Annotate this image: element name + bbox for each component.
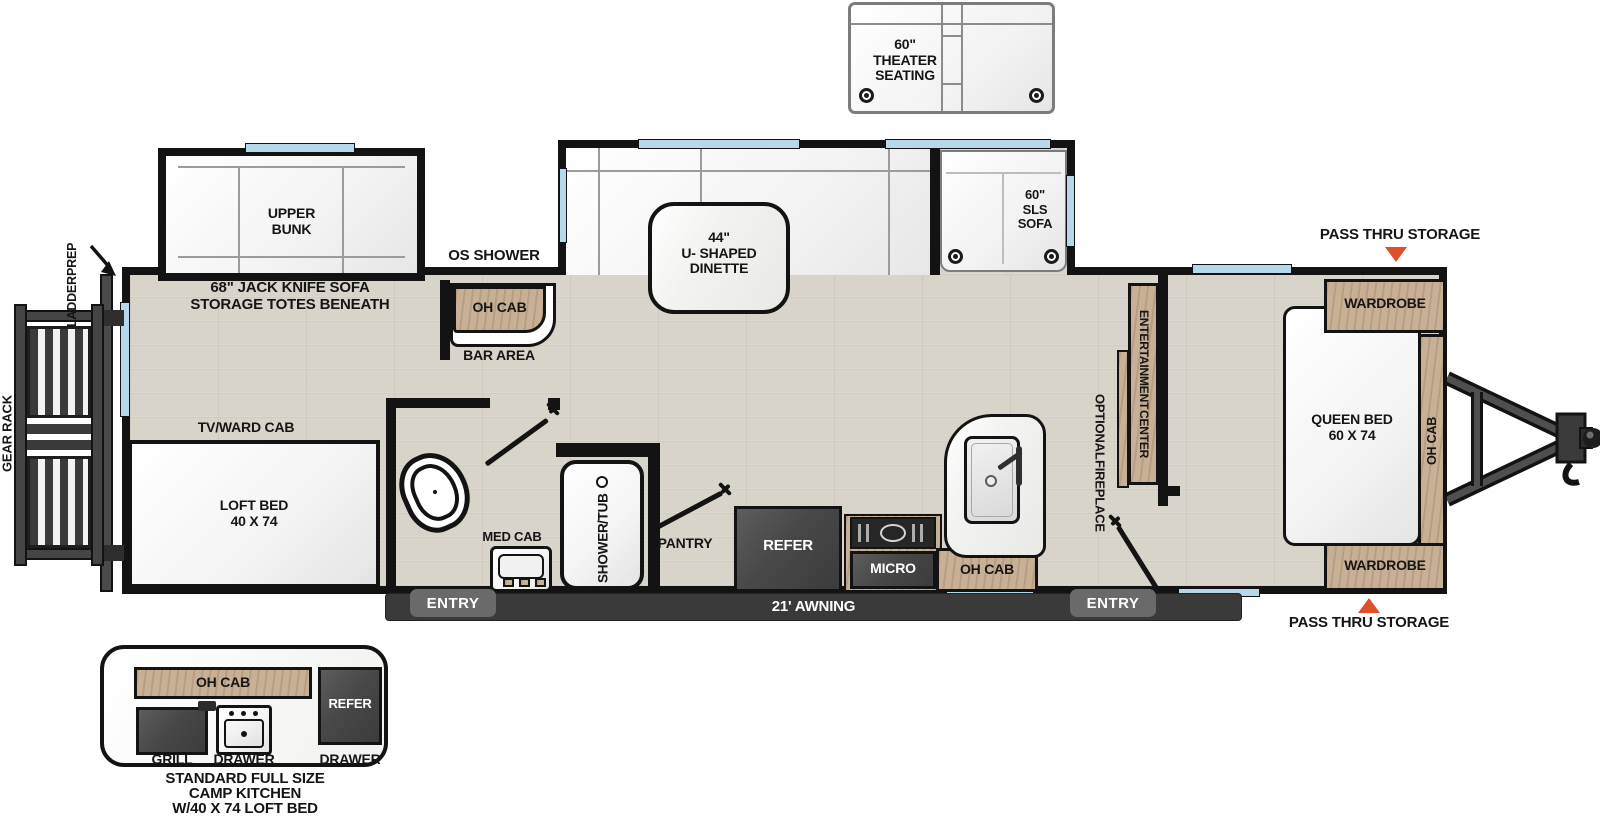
rv-floorplan: 60" THEATER SEATING 44" U- SHAPED DINETT… — [0, 0, 1600, 829]
camp-refer-label: REFER — [318, 697, 382, 712]
pass-thru-top-label: PASS THRU STORAGE — [1315, 227, 1485, 244]
sls-sofa-label: 60" SLS SOFA — [1004, 188, 1066, 232]
med-cab-label: MED CAB — [470, 530, 554, 545]
camp-grill-knob — [198, 701, 216, 711]
door-hinge-icon — [544, 400, 562, 418]
med-cab-handle — [519, 578, 530, 587]
dinette-bench-seam — [598, 148, 600, 275]
camp-sink-knob — [253, 711, 258, 716]
stove — [850, 517, 936, 549]
bath-wall-left — [386, 398, 396, 594]
bunk-seam — [178, 166, 405, 168]
pass-thru-top-arrow-icon — [1385, 247, 1407, 262]
shower-wall-right — [648, 443, 660, 594]
bedroom-oh-cab: OH CAB — [1418, 334, 1446, 548]
camp-oh-cab-label: OH CAB — [134, 675, 312, 691]
micro-label: MICRO — [850, 561, 936, 577]
window — [1066, 175, 1075, 247]
bar-oh-cab-label: OH CAB — [453, 300, 546, 316]
rack-panel — [27, 456, 91, 548]
window — [885, 139, 1051, 149]
camp-sink-knob — [241, 711, 246, 716]
sls-sofa: 60" SLS SOFA — [940, 150, 1067, 272]
camp-kitchen-inset: OH CAB REFER GRILL DRAWER DRAWER — [100, 645, 388, 767]
rack-bar — [27, 440, 91, 450]
upper-bunk-slide: UPPER BUNK — [158, 148, 425, 281]
entertainment-center: ENTERTAINMENT CENTER — [1128, 283, 1159, 485]
stove-grate — [912, 524, 928, 542]
med-cab-handle — [503, 578, 514, 587]
camp-drawer-center-label: DRAWER — [208, 752, 280, 768]
camp-sink-knob — [229, 711, 234, 716]
rack-bar — [27, 424, 91, 434]
camp-sink — [216, 705, 272, 755]
med-cab — [490, 546, 552, 592]
bedroom-partition-wall — [1158, 270, 1168, 506]
bolt-icon — [1044, 249, 1059, 264]
pass-thru-bottom-label: PASS THRU STORAGE — [1284, 615, 1454, 632]
camp-drawer-right-label: DRAWER — [314, 752, 386, 768]
queen-bed-label: QUEEN BED 60 X 74 — [1283, 412, 1421, 443]
med-cab-mirror — [498, 554, 544, 579]
slide-divider-wall — [930, 148, 940, 275]
entry-door-right: ENTRY — [1070, 589, 1156, 617]
bolt-icon — [948, 249, 963, 264]
fireplace-cabinet — [1117, 350, 1129, 488]
door-hinge-icon — [716, 480, 734, 498]
bar-area-label: BAR AREA — [444, 348, 554, 364]
refer-label: REFER — [734, 538, 842, 555]
upper-bunk-label: UPPER BUNK — [238, 206, 345, 237]
shower-tub: SHOWER /TUB — [560, 460, 644, 590]
gear-rack-label: GEAR RACK — [0, 374, 16, 494]
loft-bed-label: LOFT BED 40 X 74 — [128, 498, 380, 529]
pass-thru-bottom-arrow-icon — [1358, 598, 1380, 613]
dinette-bench-seam — [888, 148, 890, 275]
window — [638, 139, 800, 149]
window — [559, 168, 567, 243]
tv-ward-cab-label: TV/WARD CAB — [166, 420, 326, 436]
kitchen-sink — [964, 436, 1020, 524]
theater-seating: 60" THEATER SEATING — [848, 2, 1055, 114]
camp-grill — [136, 707, 208, 755]
bath-wall-top — [386, 398, 490, 408]
shower-tub-label: SHOWER /TUB — [572, 492, 634, 584]
jack-knife-sofa-label: 68" JACK KNIFE SOFA STORAGE TOTES BENEAT… — [150, 280, 430, 314]
dinette-label: 44" U- SHAPED DINETTE — [648, 230, 790, 277]
sink-drain — [985, 475, 997, 487]
camp-grill-label: GRILL — [130, 752, 214, 768]
stove-burner — [880, 524, 906, 542]
ladder-prep-arrow — [86, 242, 122, 286]
entertainment-center-label: ENTERTAINMENT CENTER — [1131, 286, 1156, 482]
rack-panel — [27, 326, 91, 418]
shower-drain — [596, 476, 608, 488]
os-shower-label: OS SHOWER — [424, 248, 564, 265]
window — [245, 143, 355, 153]
rack-post — [91, 304, 104, 566]
med-cab-handle — [535, 578, 546, 587]
gear-rack — [14, 304, 104, 566]
entry-door-left: ENTRY — [410, 589, 496, 617]
camp-kitchen-caption: STANDARD FULL SIZE CAMP KITCHEN W/40 X 7… — [95, 771, 395, 816]
partition-stub — [1166, 486, 1180, 496]
bolt-icon — [859, 88, 874, 103]
door-hinge-icon — [1106, 512, 1124, 530]
shower-wall-top — [556, 443, 660, 457]
bunk-seam — [178, 256, 405, 258]
bolt-icon — [1029, 88, 1044, 103]
entry-left-label: ENTRY — [427, 595, 480, 612]
stove-grate — [858, 524, 874, 542]
kitchen-oh-cab-label: OH CAB — [936, 562, 1038, 578]
wardrobe-rear-label: WARDROBE — [1324, 296, 1446, 312]
ladder-prep-label: LADDER PREP — [54, 246, 90, 324]
trailer-hitch — [1447, 358, 1600, 520]
theater-seating-label: 60" THEATER SEATING — [859, 37, 951, 84]
pantry-label: PANTRY — [640, 536, 730, 552]
bedroom-oh-cab-label: OH CAB — [1421, 337, 1443, 545]
wardrobe-front-label: WARDROBE — [1324, 558, 1446, 574]
window — [1192, 264, 1292, 274]
dinette-bench-seam — [566, 170, 930, 172]
entry-right-label: ENTRY — [1087, 595, 1140, 612]
